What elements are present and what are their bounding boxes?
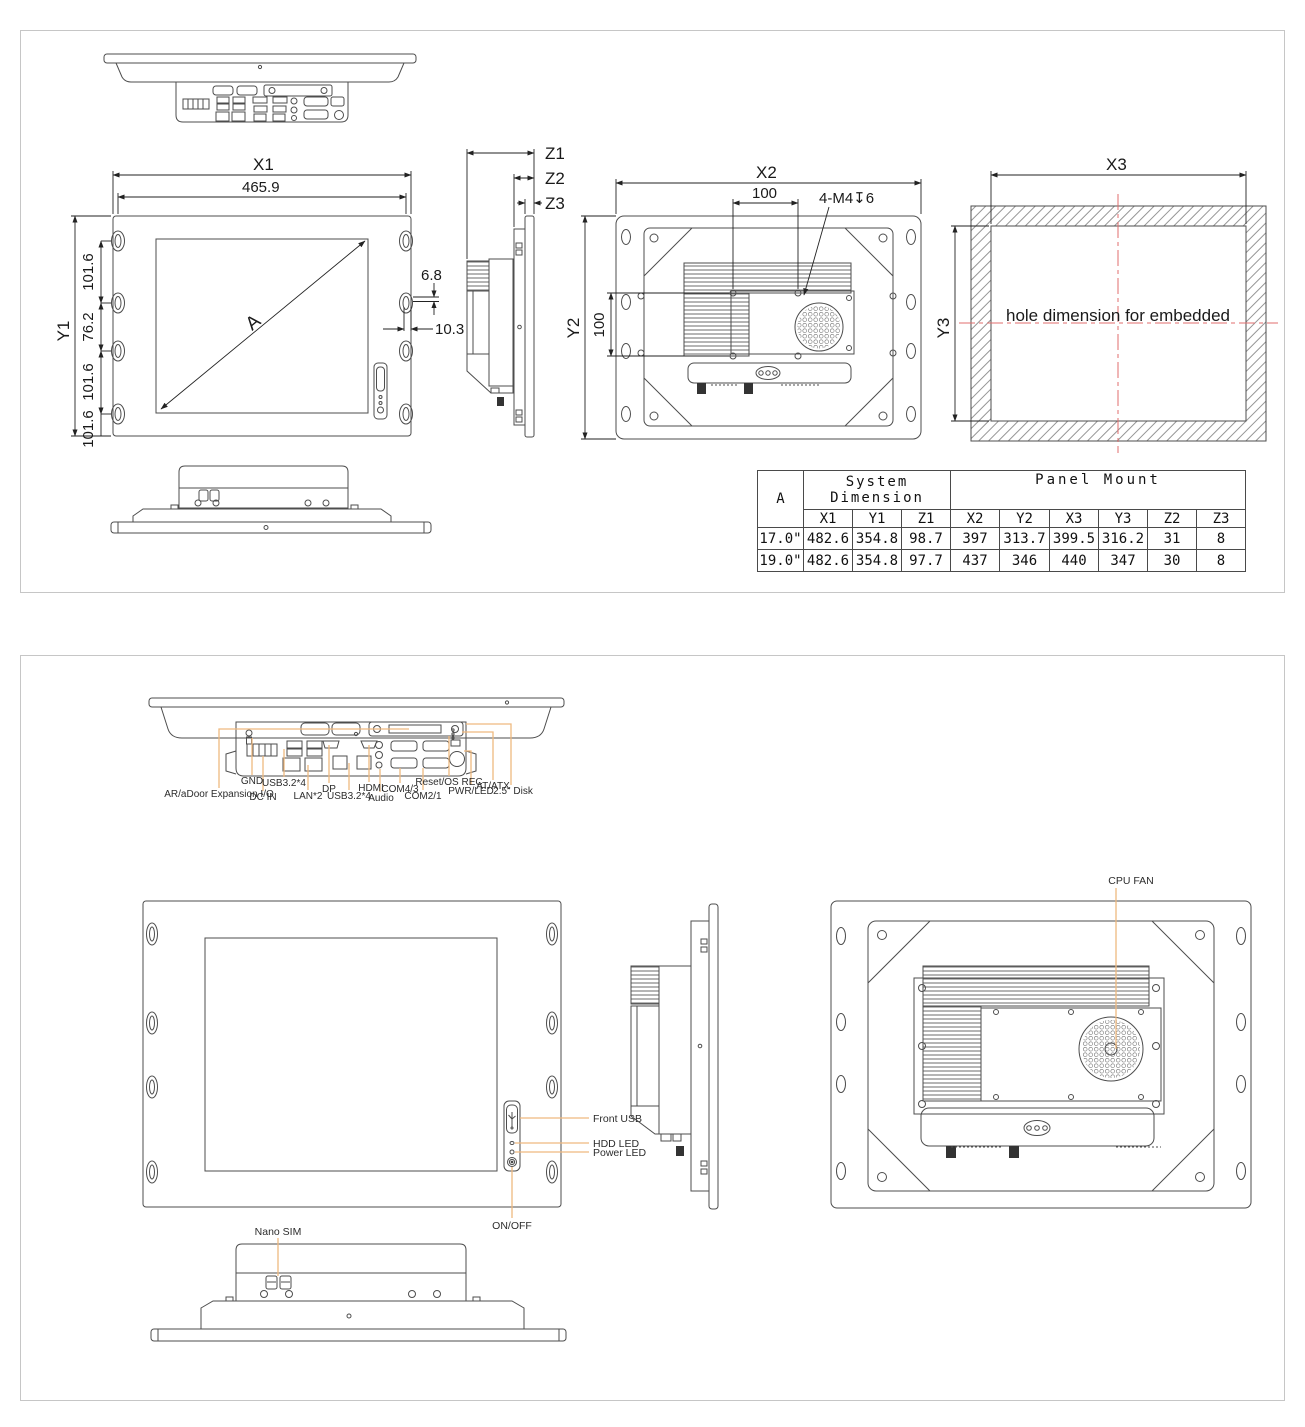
dim-seg3: 101.6 [80, 363, 97, 401]
dim-vesa-h: 100 [752, 185, 777, 202]
label-power-led: Power LED [593, 1147, 647, 1159]
dimension-table: A System Dimension Panel Mount X1 Y1 Z1 … [757, 470, 1246, 572]
table-group-panel-mount: Panel Mount [951, 471, 1246, 510]
cell: 316.2 [1099, 528, 1148, 550]
table-group-system: System Dimension [804, 471, 951, 510]
table-corner-a: A [758, 471, 804, 528]
label-com21: COM2/1 [404, 791, 442, 802]
dim-x2: X2 [756, 163, 777, 182]
table-header: X3 [1050, 510, 1099, 528]
cell: 397 [951, 528, 1000, 550]
side-view-dimensions [467, 149, 542, 259]
rear-view [616, 216, 921, 439]
dim-ear-depth: 10.3 [435, 321, 464, 338]
table-header: Z1 [902, 510, 951, 528]
cell: 482.6 [804, 528, 853, 550]
bottom-edge-io-view [104, 54, 416, 122]
cell: 346 [1000, 550, 1050, 572]
cell: 31 [1148, 528, 1197, 550]
dim-seg1: 101.6 [80, 253, 97, 291]
label-lan: LAN*2 [294, 791, 323, 802]
side-view-2 [631, 904, 718, 1209]
rear-view-dimensions [581, 179, 921, 439]
table-header: Y2 [1000, 510, 1050, 528]
table-header: Y3 [1099, 510, 1148, 528]
sheet-io-callouts: GND AR/aDoor Expansion I/O DC IN USB3.2*… [20, 655, 1285, 1401]
dim-ear-offset: 6.8 [421, 267, 442, 284]
dim-z1: Z1 [545, 144, 565, 163]
cell: 354.8 [853, 550, 902, 572]
cell: 8 [1197, 550, 1246, 572]
table-header: X2 [951, 510, 1000, 528]
cell: 98.7 [902, 528, 951, 550]
row-label: 19.0" [758, 550, 804, 572]
cell: 354.8 [853, 528, 902, 550]
dim-z3: Z3 [545, 194, 565, 213]
front-leader-lines [512, 1118, 589, 1218]
cell: 347 [1099, 550, 1148, 572]
dim-seg4: 101.6 [80, 410, 97, 448]
dim-diagonal-a: A [242, 310, 265, 334]
cell: 482.6 [804, 550, 853, 572]
embedded-note: hole dimension for embedded [1006, 306, 1230, 325]
table-header: Y1 [853, 510, 902, 528]
cell: 30 [1148, 550, 1197, 572]
label-on-off: ON/OFF [492, 1220, 532, 1232]
table-header: Z3 [1197, 510, 1246, 528]
label-gnd: GND [241, 776, 263, 787]
drawing-page: { "colors": { "line": "#4d4d4d", "dim": … [0, 0, 1305, 1427]
dim-x3: X3 [1106, 155, 1127, 174]
label-disk: 2.5" Disk [493, 786, 534, 797]
bottom-view-2 [151, 1244, 566, 1341]
cell: 8 [1197, 528, 1246, 550]
dim-y1: Y1 [54, 321, 73, 342]
dim-x1-value: 465.9 [242, 179, 280, 196]
table-group-system-line2: Dimension [804, 490, 950, 506]
dim-seg2: 76.2 [80, 312, 97, 341]
cell: 399.5 [1050, 528, 1099, 550]
io-view [149, 698, 564, 776]
dim-z2: Z2 [545, 169, 565, 188]
cell: 437 [951, 550, 1000, 572]
label-cpu-fan: CPU FAN [1108, 875, 1154, 887]
row-label: 17.0" [758, 528, 804, 550]
dim-y2: Y2 [564, 318, 583, 339]
table-row: 17.0" 482.6 354.8 98.7 397 313.7 399.5 3… [758, 528, 1246, 550]
dim-x1: X1 [253, 155, 274, 174]
dim-thread-note: 4-M4↧6 [819, 190, 874, 207]
table-group-system-line1: System [804, 474, 950, 490]
sheet-dimensions: X1 465.9 Y1 101.6 76.2 101.6 101.6 A 6.8… [20, 30, 1285, 593]
front-view-2 [143, 901, 561, 1207]
label-usb-a: USB3.2*4 [262, 778, 306, 789]
table-header: X1 [804, 510, 853, 528]
dim-y3: Y3 [934, 318, 953, 339]
table-row: 19.0" 482.6 354.8 97.7 437 346 440 347 3… [758, 550, 1246, 572]
cell: 97.7 [902, 550, 951, 572]
label-dc-in: DC IN [249, 792, 276, 803]
table-header: Z2 [1148, 510, 1197, 528]
dim-vesa-v: 100 [591, 312, 608, 337]
cell: 440 [1050, 550, 1099, 572]
bottom-view [111, 466, 431, 533]
cell: 313.7 [1000, 528, 1050, 550]
label-nano-sim: Nano SIM [255, 1226, 302, 1238]
rear-view-2 [831, 901, 1251, 1208]
sheet2-drawing: GND AR/aDoor Expansion I/O DC IN USB3.2*… [21, 656, 1284, 1400]
side-view [467, 216, 534, 437]
front-view-dimensions [71, 171, 439, 436]
